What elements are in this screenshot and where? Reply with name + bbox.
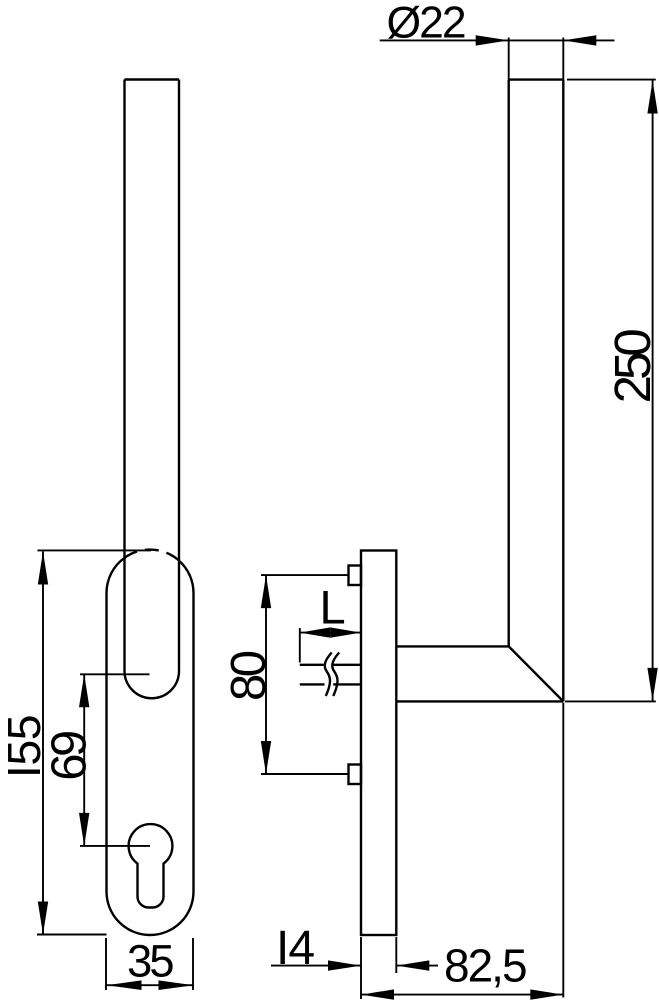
svg-text:Ø22: Ø22: [387, 0, 465, 47]
svg-text:I4: I4: [276, 922, 314, 975]
svg-text:L: L: [320, 581, 346, 634]
svg-text:250: 250: [604, 330, 659, 404]
svg-text:69: 69: [43, 732, 97, 781]
svg-text:80: 80: [222, 651, 276, 701]
svg-text:35: 35: [127, 936, 173, 987]
svg-text:82,5: 82,5: [444, 940, 526, 992]
